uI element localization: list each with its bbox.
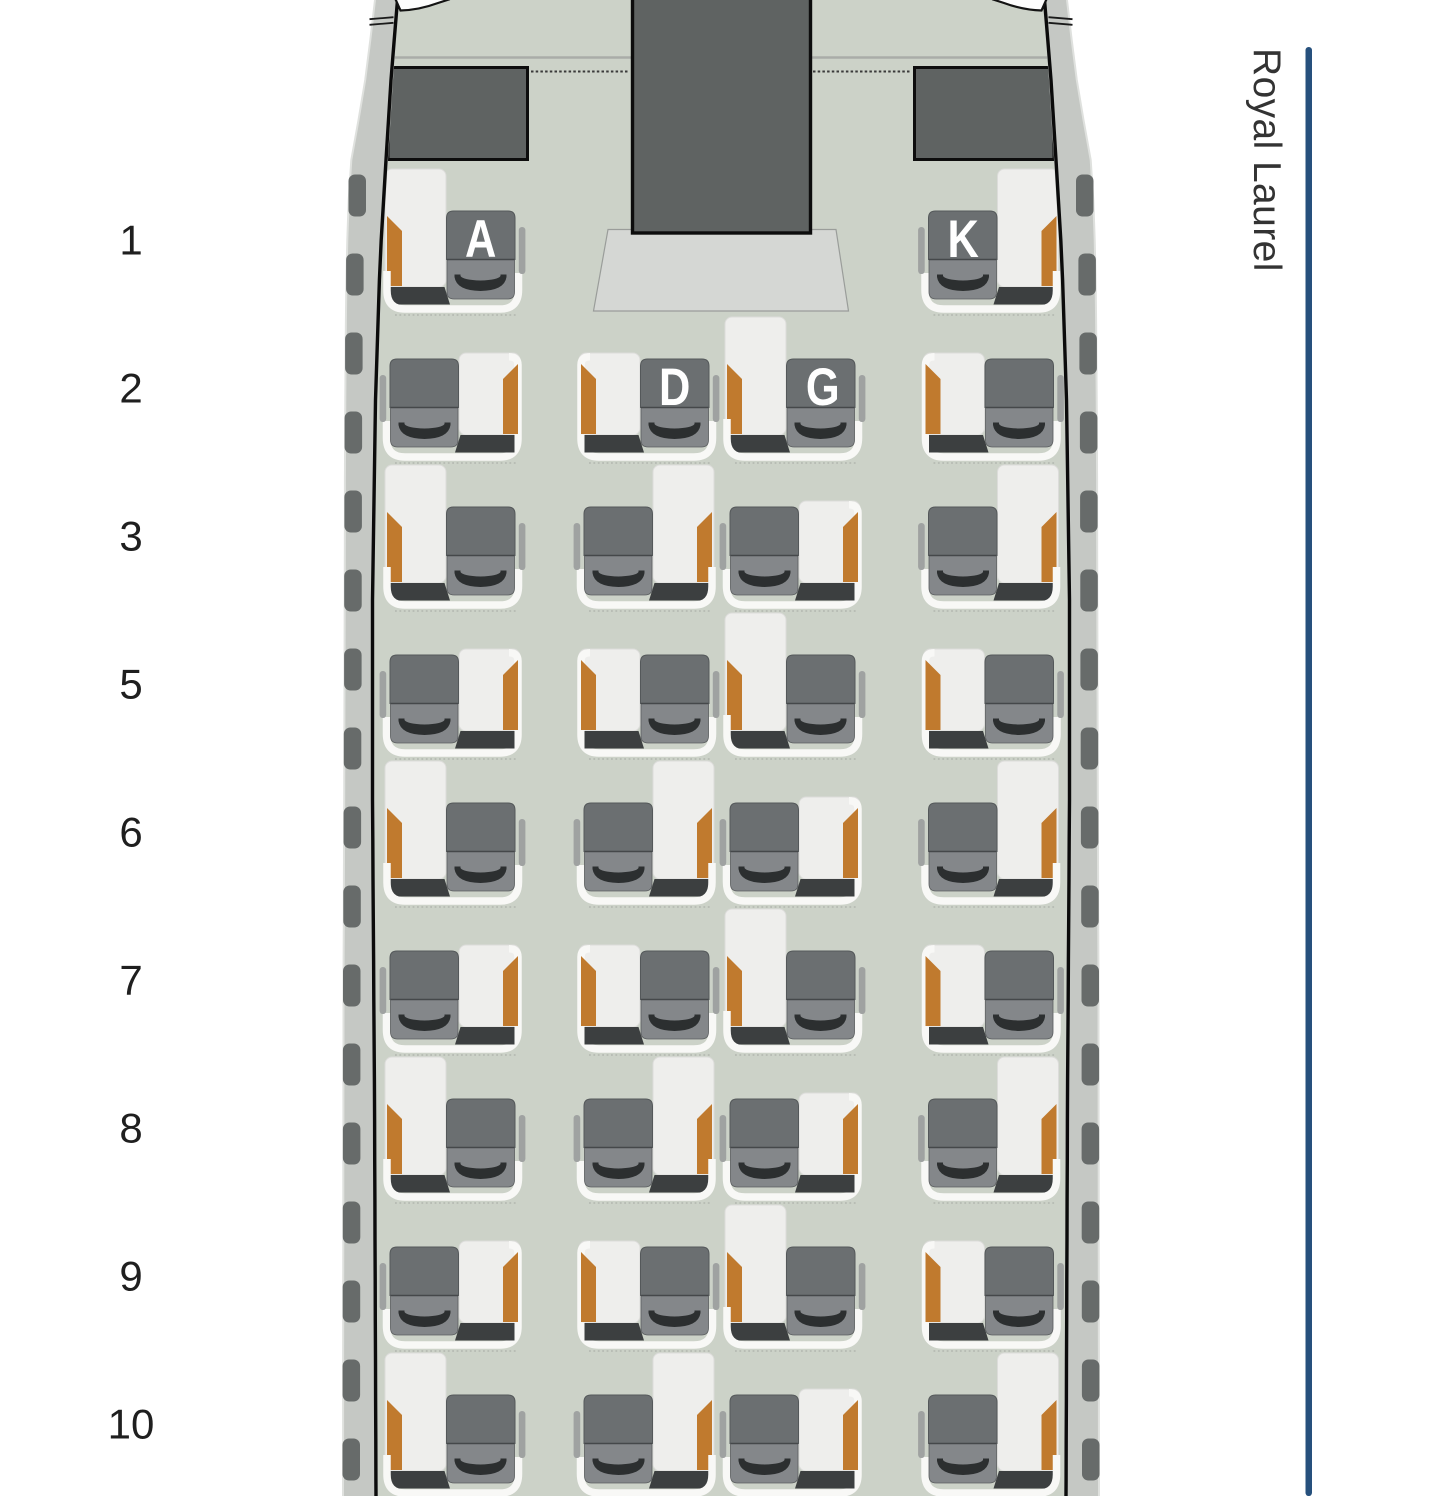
svg-text:Royal Laurel: Royal Laurel (1245, 48, 1288, 272)
svg-text:G: G (806, 358, 840, 417)
svg-text:8: 8 (119, 1105, 142, 1152)
svg-text:3: 3 (119, 513, 142, 560)
svg-text:1: 1 (119, 217, 142, 264)
svg-text:7: 7 (119, 957, 142, 1004)
svg-text:K: K (948, 210, 979, 269)
svg-text:5: 5 (119, 661, 142, 708)
svg-text:6: 6 (119, 809, 142, 856)
svg-text:D: D (659, 358, 690, 417)
svg-text:9: 9 (119, 1253, 142, 1300)
svg-text:10: 10 (108, 1401, 155, 1448)
svg-text:A: A (465, 210, 496, 269)
svg-text:2: 2 (119, 365, 142, 412)
